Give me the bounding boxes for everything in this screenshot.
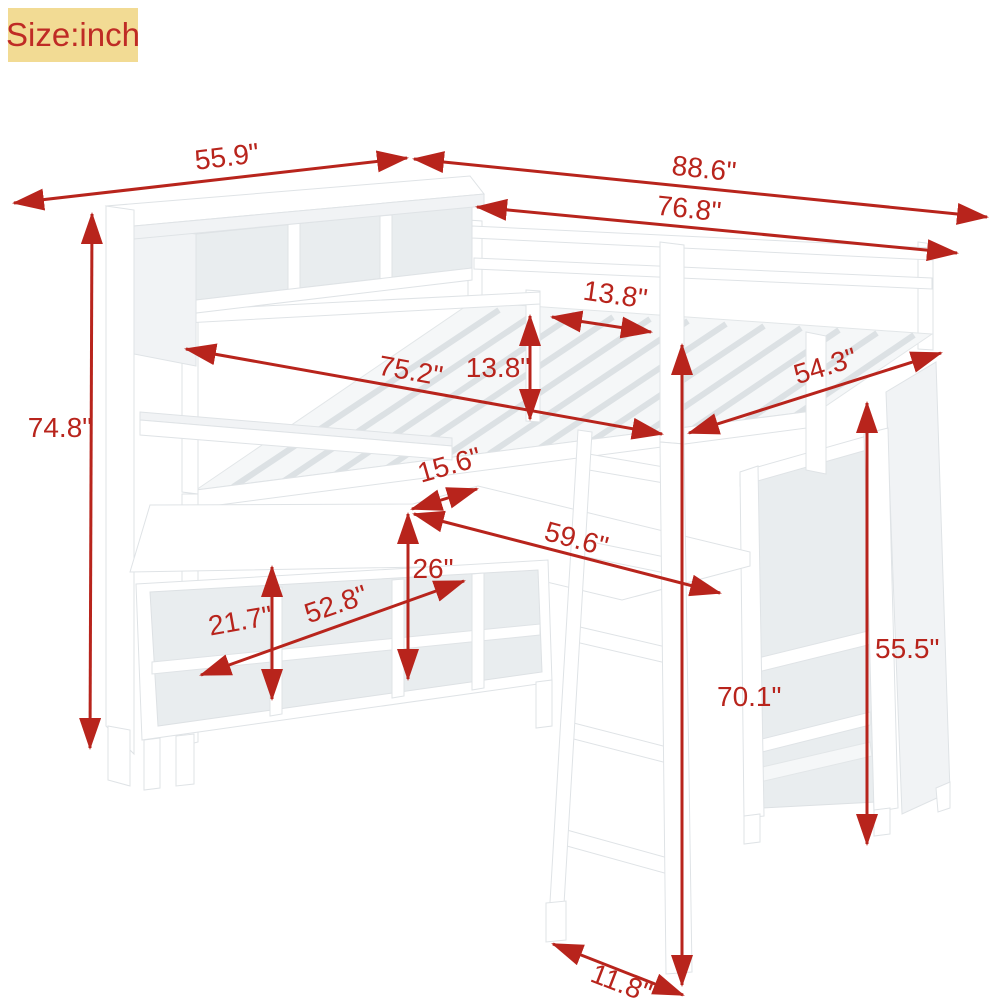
dimension-label: 88.6" — [670, 150, 737, 188]
head-rear-foot — [176, 734, 194, 786]
diagram-canvas: 55.9" 88.6" 76.8" 13.8" 13.8" 75.2" 54.3… — [0, 0, 1000, 1000]
dimension-label: 70.1" — [717, 681, 781, 712]
loft-bed-dimension-diagram: 55.9" 88.6" 76.8" 13.8" 13.8" 75.2" 54.3… — [0, 0, 1000, 1000]
size-unit-label: Size:inch — [6, 16, 140, 54]
dimension-label: 26" — [412, 553, 453, 584]
dimension-label: 55.9" — [193, 137, 261, 176]
dimension-label: 13.8" — [466, 352, 530, 383]
dimension-label: 11.8" — [587, 957, 656, 1000]
dimension-ladder-foot-depth: 11.8" — [553, 944, 683, 1000]
dimension-total-height: 74.8" — [28, 214, 92, 748]
dimension-label: 76.8" — [655, 190, 722, 228]
dimension-label: 55.5" — [875, 633, 939, 664]
dimension-label: 74.8" — [28, 412, 92, 443]
size-unit-badge: Size:inch — [8, 8, 138, 62]
wardrobe — [740, 362, 950, 844]
dimension-label: 13.8" — [581, 275, 649, 315]
